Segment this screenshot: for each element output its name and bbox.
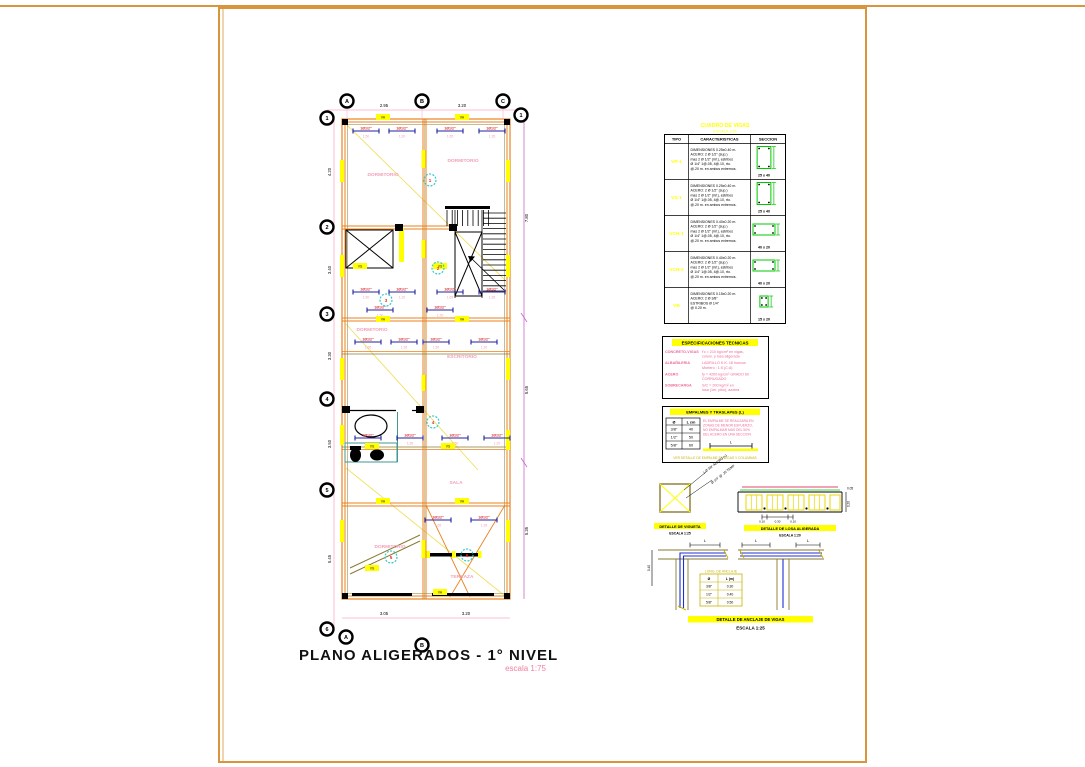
beam-section-bar <box>765 297 767 299</box>
beam-type: VB <box>673 303 680 309</box>
wall-block <box>449 224 457 231</box>
beam-section-bar <box>758 166 760 168</box>
splice-length: 50 <box>689 436 693 440</box>
room-label: SALA <box>449 480 463 486</box>
beam-desc-line: DIMENSIONES 0.25x0.40 m. <box>691 184 737 188</box>
sheet-title-block: PLANO ALIGERADOS - 1° NIVEL escala 1:75 <box>299 647 558 673</box>
dim-text: 5.35 <box>524 526 529 535</box>
beam-section-bar <box>772 261 774 263</box>
losa-detail: 0.20 0.05 0.10 0.30 0.10 DETALLE DE LOSA… <box>738 487 853 538</box>
rebar-label: 1Ø1/2" <box>432 515 444 519</box>
beam-desc-line: DIMENSIONES 0.25x0.40 m. <box>691 148 737 152</box>
svg-text:6: 6 <box>325 627 328 633</box>
splice-note-line: DEL ACERO EN UNA SECCION <box>703 433 751 437</box>
column-marker <box>422 375 426 391</box>
beam-table-title: CUADRO DE VIGAS <box>701 123 751 129</box>
svg-text:1: 1 <box>325 116 328 122</box>
anchor-diam: 5/8" <box>706 601 713 605</box>
column-marker <box>506 520 510 542</box>
beam-desc-line: @.20 m. en ambos extremos. <box>691 239 737 243</box>
beam-section <box>757 147 771 169</box>
rebar-marks: 1Ø1/2"1.501Ø1/2"1.201Ø1/2"1.651Ø1/2"1.35… <box>353 126 510 527</box>
anchor-length: 0.50 <box>727 601 734 605</box>
column-marker <box>506 430 510 450</box>
beam-desc-line: ACERO: 2 Ø 1/2" (sup.) <box>691 153 728 157</box>
grid-bubble-1: 1 <box>321 112 334 125</box>
beam-section <box>753 260 775 271</box>
losa-dim: 0.10 <box>759 520 765 524</box>
anchor-dim-label: L <box>755 538 758 543</box>
rebar-length: 1.35 <box>489 295 496 299</box>
rebar-label: 1Ø1/2" <box>449 433 461 437</box>
beam-table-headers: TIPO CARACTERISTICAS SECCION <box>672 137 777 142</box>
beam-section-bar <box>754 261 756 263</box>
grid-bubble-5: 5 <box>321 484 334 497</box>
splice-length: 60 <box>689 444 693 448</box>
beam-desc-line: mas 2 Ø 1/2" (inf.), estribos <box>691 265 734 269</box>
anchor-table-title: LONG. DE ANCLAJE <box>705 570 738 574</box>
rebar-label: 1Ø1/2" <box>362 337 374 341</box>
splice-col2: L cm <box>687 420 696 424</box>
rebar-label: 1Ø1/2" <box>434 305 446 309</box>
slab-panel-number: 3 <box>385 298 388 303</box>
beam-table-subtitle: ESCALA 1:25 <box>713 130 736 134</box>
column-marker <box>506 255 510 277</box>
grid-bubble-2: 2 <box>321 221 334 234</box>
beam-type: VP-1 <box>671 159 682 165</box>
beam-desc-line: DIMENSIONES 0.40x0.20 m. <box>691 256 737 260</box>
beam-desc-line: ACERO: 2 Ø 1/2" (sup.) <box>691 225 728 229</box>
rebar-length: 1.20 <box>481 345 488 349</box>
beam-desc-line: mas 2 Ø 1/2" (inf.), estribos <box>691 229 734 233</box>
rebar-label: 1Ø1/2" <box>362 433 374 437</box>
wall-block <box>342 593 348 599</box>
cad-canvas: 1Ø1/2"1.501Ø1/2"1.201Ø1/2"1.651Ø1/2"1.35… <box>0 0 1085 767</box>
splice-length: 40 <box>689 428 693 432</box>
rebar-length: 1.65 <box>447 295 454 299</box>
rebar-label: 1Ø1/2" <box>478 515 490 519</box>
losa-top-dim: 0.05 <box>847 487 853 491</box>
vigueta-steel-dot <box>805 507 807 509</box>
rebar-length: 1.65 <box>365 345 372 349</box>
beam-desc-line: @.20 m. en ambos extremos. <box>691 275 737 279</box>
floor-plan: 1Ø1/2"1.501Ø1/2"1.201Ø1/2"1.651Ø1/2"1.35… <box>321 95 530 652</box>
dim-text: 3.20 <box>458 103 467 108</box>
vigueta-scale: ESCALA 1:25 <box>669 532 691 536</box>
rebar-length: 1.20 <box>399 295 406 299</box>
spec-value-line: S/C = 200 kg/m² en <box>702 384 734 388</box>
spec-value-line: CORRUGADO <box>702 377 727 381</box>
anchorage-detail-right: L L <box>738 538 824 610</box>
rebar-label: 1Ø1/2" <box>404 433 416 437</box>
beam-section-bar <box>754 268 756 270</box>
sheet-scale: escala 1:75 <box>505 664 546 673</box>
splice-diam: 3/8" <box>671 428 678 432</box>
rebar-label: 1Ø1/2" <box>360 287 372 291</box>
rebar-label: 1Ø1/2" <box>478 337 490 341</box>
beam-section-bar <box>768 202 770 204</box>
spec-value-line: f'c = 210 kg/cm² en vigas, <box>702 350 744 354</box>
beam-tag-label: VS <box>446 444 451 448</box>
splice-note-line: NO EMPALMAR MAS DEL 50% <box>703 428 750 432</box>
spec-label: CONCRETO-VIGAS <box>665 350 699 354</box>
slab-panel-number: 1 <box>429 178 432 183</box>
beam-tag-label: VA <box>381 317 386 321</box>
beam-section-bar <box>768 148 770 150</box>
slab-panel-number: 5 <box>390 555 393 560</box>
svg-text:2: 2 <box>325 225 328 231</box>
beam-col-header: TIPO <box>672 137 681 142</box>
beam-section-bar <box>754 225 756 227</box>
beam-tag-label: VS <box>358 264 363 268</box>
sink <box>370 450 384 461</box>
room-label: TERRAZA <box>451 574 474 580</box>
losa-dim: 0.10 <box>790 520 796 524</box>
room-label: DORMITORIO <box>374 544 405 550</box>
beam-section-bar <box>768 166 770 168</box>
room-label: DORMITORIO <box>356 327 387 333</box>
rebar-length: 1.35 <box>489 134 496 138</box>
grid-bubble-6: 6 <box>321 623 334 636</box>
beam-desc-line: ACERO: 2 Ø 1/2" (sup.) <box>691 261 728 265</box>
svg-text:3: 3 <box>325 312 328 318</box>
anchor-header: Ø <box>708 577 711 581</box>
losa-brick <box>767 495 783 510</box>
dim-text: 3.30 <box>327 351 332 360</box>
svg-text:A: A <box>344 635 348 641</box>
beam-desc-line: Ø 1/4" 1@.05, 4@.10, rto. <box>691 198 731 202</box>
rebar-length: 1.35 <box>407 441 414 445</box>
beam-section-bar <box>761 304 763 306</box>
rebar-label: 1Ø1/2" <box>360 126 372 130</box>
beam-desc-line: DIMENSIONES 0.15x0.20 m. <box>691 292 737 296</box>
beam-col-header: SECCION <box>759 137 777 142</box>
drawing-sheet: 1Ø1/2"1.501Ø1/2"1.201Ø1/2"1.651Ø1/2"1.35… <box>0 0 1085 767</box>
grid-bubble-3: 3 <box>321 308 334 321</box>
splice-note: EL EMPALME SE REALIZARA ENZONAS DE MENOR… <box>703 419 754 437</box>
beam-section <box>757 183 771 205</box>
grid-bubble-bottom-A: A <box>340 631 353 644</box>
losa-dim: 0.30 <box>775 520 781 524</box>
beam-section-dim: 25 x 40 <box>758 210 770 214</box>
beam-desc-line: ACERO: 2 Ø 1/2" (sup.) <box>691 189 728 193</box>
beam-section-bar <box>754 232 756 234</box>
beam-section-dim: 25 x 40 <box>758 174 770 178</box>
column-marker <box>399 228 404 262</box>
anchor-header: L (m) <box>726 577 734 581</box>
beam-tag-label: VA <box>460 115 465 119</box>
spec-value-line: fy = 4200 kg/cm² GRADO 60 <box>702 372 749 376</box>
dim-text: 3.05 <box>380 611 389 616</box>
column-marker <box>340 520 344 542</box>
anchor-diam: 3/8" <box>706 585 713 589</box>
beam-desc-line: mas 2 Ø 1/2" (inf.), estribos <box>691 193 734 197</box>
beam-section-bar <box>761 297 763 299</box>
anchor-side-dim: 0.40 <box>647 565 651 571</box>
rebar-length: 1.50 <box>433 345 440 349</box>
grid-bubbles: A B C 1 2 3 4 5 6 1 A B <box>321 95 528 652</box>
svg-text:A: A <box>345 99 349 105</box>
dim-text: 5.65 <box>524 385 529 394</box>
svg-text:C: C <box>501 99 505 105</box>
spec-label: ALBAÑILERIA <box>665 360 690 365</box>
column-marker <box>340 160 344 182</box>
beam-section-bar <box>772 232 774 234</box>
beam-section-dim: 40 x 20 <box>758 282 770 286</box>
splice-rows: 3/8"401/2"505/8"60 <box>666 428 700 448</box>
dim-text: 7.80 <box>524 213 529 222</box>
rebar-length: 1.20 <box>437 313 444 317</box>
wall-block <box>504 593 510 599</box>
column-marker <box>340 425 344 445</box>
anchor-title: DETALLE DE ANCLAJE DE VIGAS <box>717 617 785 622</box>
splice-footer: VER DETALLE DE EMPALME EN VIGAS Y COLUMN… <box>673 456 757 460</box>
spec-value-line: losa (1er. piso), azotea <box>702 388 740 392</box>
spec-value-line: Mortero : 1:5 (C:A) <box>702 366 733 370</box>
anchor-length: 0.40 <box>727 593 734 597</box>
slab-panel-number: 4 <box>432 420 435 425</box>
anchor-length-table: LONG. DE ANCLAJE ØL (m)3/8"0.301/2"0.405… <box>700 570 742 607</box>
rebar-length: 1.35 <box>481 523 488 527</box>
dim-text: 5.45 <box>327 554 332 563</box>
splice-col1: Ø <box>673 420 676 424</box>
rebar-length: 1.35 <box>401 345 408 349</box>
rebar-label: 1Ø1/2" <box>398 337 410 341</box>
dim-text: 4.20 <box>327 167 332 176</box>
dim-text: 3.40 <box>327 265 332 274</box>
spec-value-line: colum. y losa aligerada <box>702 355 741 359</box>
anchor-dim-label: L <box>807 538 810 543</box>
stair-treads <box>447 210 506 291</box>
beam-section-bar <box>772 268 774 270</box>
rebar-length: 1.20 <box>399 134 406 138</box>
beam-section <box>753 224 775 235</box>
rebar-length: 1.50 <box>363 295 370 299</box>
beam-tag-label: VA <box>381 115 386 119</box>
column-marker <box>506 358 510 380</box>
losa-scale: ESCALA 1:20 <box>779 534 801 538</box>
toilet <box>350 448 361 462</box>
vigueta-steel-dot <box>763 507 765 509</box>
anchor-table-rows: ØL (m)3/8"0.301/2"0.405/8"0.50 <box>700 577 742 605</box>
splice-title: EMPALMES Y TRASLAPES (L) <box>686 410 744 415</box>
room-label: DORMITORIO <box>447 158 478 164</box>
anchor-scale: ESCALA 1:25 <box>736 626 765 631</box>
losa-bricks <box>746 495 840 510</box>
anchor-diam: 1/2" <box>706 593 713 597</box>
beam-desc-line: @ 0.20 m. <box>691 306 707 310</box>
beam-desc-line: @.20 m. en ambos extremos. <box>691 203 737 207</box>
rebar-label: 1Ø1/2" <box>430 337 442 341</box>
dimension-lines <box>327 106 527 629</box>
rebar-label: 1Ø1/2" <box>396 287 408 291</box>
splice-diam: 5/8" <box>671 444 678 448</box>
losa-brick <box>809 495 825 510</box>
spec-value-line: LADRILLO K.K. 18 huecos <box>702 361 746 365</box>
beam-desc-line: DIMENSIONES 0.40x0.20 m. <box>691 220 737 224</box>
svg-text:1: 1 <box>519 113 522 119</box>
spec-label: SOBRECARGA <box>665 384 692 388</box>
beam-col-header: CARACTERISTICAS <box>700 137 739 142</box>
rebar-label: 1Ø1/2" <box>444 126 456 130</box>
column-marker <box>340 358 344 380</box>
beam-tag-label: VA <box>381 499 386 503</box>
column-marker <box>422 240 426 258</box>
beam-tag-label: VA <box>460 499 465 503</box>
beam-section-bar <box>765 304 767 306</box>
grid-bubble-C: C <box>497 95 510 108</box>
beam-section-dim: 15 x 20 <box>758 318 770 322</box>
grid-bubble-right-1: 1 <box>515 109 528 122</box>
losa-height: 0.20 <box>847 501 851 507</box>
beam-desc-line: mas 2 Ø 1/2" (inf.), estribos <box>691 157 734 161</box>
anchor-length: 0.30 <box>727 585 734 589</box>
sheet-title: PLANO ALIGERADOS - 1° NIVEL <box>299 647 558 664</box>
slab-panel-number: 6 <box>466 553 469 558</box>
beam-type: VCH-1 <box>669 231 684 237</box>
wall-block <box>416 406 424 413</box>
beam-section-bar <box>768 184 770 186</box>
splice-note-line: ZONAS DE MENOR ESFUERZO, <box>703 424 753 428</box>
svg-text:5: 5 <box>325 488 328 494</box>
beam-tag-label: VS <box>370 566 375 570</box>
column-marker <box>422 540 426 558</box>
beam-type: VS-1 <box>671 195 682 201</box>
slab-panel-number: 2 <box>437 266 440 271</box>
room-labels: DORMITORIO DORMITORIO DORMITORIO ESCRITO… <box>356 158 478 580</box>
beam-section-bar <box>758 148 760 150</box>
splice-dim-label: L <box>730 440 733 445</box>
rebar-length: 1.20 <box>494 441 501 445</box>
beam-tag-label: VA <box>460 317 465 321</box>
splice-box: EMPALMES Y TRASLAPES (L) Ø L cm 3/8"401/… <box>663 407 769 463</box>
room-label: ESCRITORIO <box>447 354 477 360</box>
losa-brick <box>788 495 804 510</box>
rebar-length: 1.50 <box>363 134 370 138</box>
grid-bubble-A: A <box>341 95 354 108</box>
vigueta-steel-dot <box>826 507 828 509</box>
rebar-label: 1Ø1/2" <box>486 126 498 130</box>
wall-block <box>342 406 350 413</box>
splice-note-line: EL EMPALME SE REALIZARA EN <box>703 419 754 423</box>
specs-items: CONCRETO-VIGASf'c = 210 kg/cm² en vigas,… <box>665 350 749 392</box>
rebar-length: 1.65 <box>447 134 454 138</box>
dim-text: 3.50 <box>327 439 332 448</box>
vigueta-title: DETALLE DE VIGUETA <box>659 525 700 529</box>
vigueta-detail: 1 Ø 3/8" ACERO (+) Ø 1/4" @ .25 TEMP. DE… <box>654 453 736 535</box>
specs-title: ESPECIFICACIONES TECNICAS <box>682 340 749 345</box>
wall-block <box>342 119 348 125</box>
column-marker <box>340 255 344 277</box>
beam-schedule: CUADRO DE VIGAS ESCALA 1:25 TIPO CARACTE… <box>665 123 786 324</box>
room-label: DORMITORIO <box>367 172 398 178</box>
dim-text: 2.95 <box>380 103 389 108</box>
beam-desc-line: Ø 1/4" 1@.05, 4@.10, rto. <box>691 234 731 238</box>
beam-desc-line: Ø 1/4" 1@.05, 4@.10, rto. <box>691 162 731 166</box>
beam-section-bar <box>758 202 760 204</box>
beam-type: VCH-2 <box>669 267 684 273</box>
grid-bubble-B: B <box>416 95 429 108</box>
splice-diam: 1/2" <box>671 436 678 440</box>
anchor-dim-label: L <box>704 538 707 543</box>
rebar-length: 1.65 <box>435 523 442 527</box>
beam-table-rows: VP-1DIMENSIONES 0.25x0.40 m.ACERO: 2 Ø 1… <box>665 147 786 322</box>
vigueta-steel-dot <box>784 507 786 509</box>
svg-text:B: B <box>420 99 424 105</box>
beam-desc-line: ACERO: 2 Ø 3/8" <box>691 297 719 301</box>
dim-text: 3.20 <box>462 611 471 616</box>
beam-desc-line: @.20 m. en ambos extremos. <box>691 167 737 171</box>
beam-section-bar <box>772 225 774 227</box>
column-marker <box>506 160 510 182</box>
wall-block <box>504 119 510 125</box>
column-marker <box>422 150 426 168</box>
beam-section-dim: 40 x 20 <box>758 246 770 250</box>
beam-tag-label: VA <box>438 590 443 594</box>
rebar-label: 1Ø1/2" <box>491 433 503 437</box>
losa-brick <box>746 495 762 510</box>
beam-tag-label: VS <box>370 444 375 448</box>
specs-box: ESPECIFICACIONES TECNICAS CONCRETO-VIGAS… <box>663 337 769 399</box>
wall-block <box>395 224 403 231</box>
splice-diagram: L <box>703 440 758 452</box>
spec-label: ACERO <box>665 372 678 376</box>
details: 1 Ø 3/8" ACERO (+) Ø 1/4" @ .25 TEMP. DE… <box>647 453 853 630</box>
rebar-label: 1Ø1/2" <box>486 287 498 291</box>
grid-bubble-4: 4 <box>321 393 334 406</box>
losa-brick <box>830 495 840 510</box>
beam-desc-line: ESTRIBOS Ø 1/4" <box>691 301 720 305</box>
beam-desc-line: Ø 1/4" 1@.05, 4@.10, rto. <box>691 270 731 274</box>
rebar-label: 1Ø1/2" <box>396 126 408 130</box>
losa-title: DETALLE DE LOSA ALIGERADA <box>761 527 820 531</box>
rebar-label: 1Ø1/2" <box>444 287 456 291</box>
beam-section-bar <box>758 184 760 186</box>
